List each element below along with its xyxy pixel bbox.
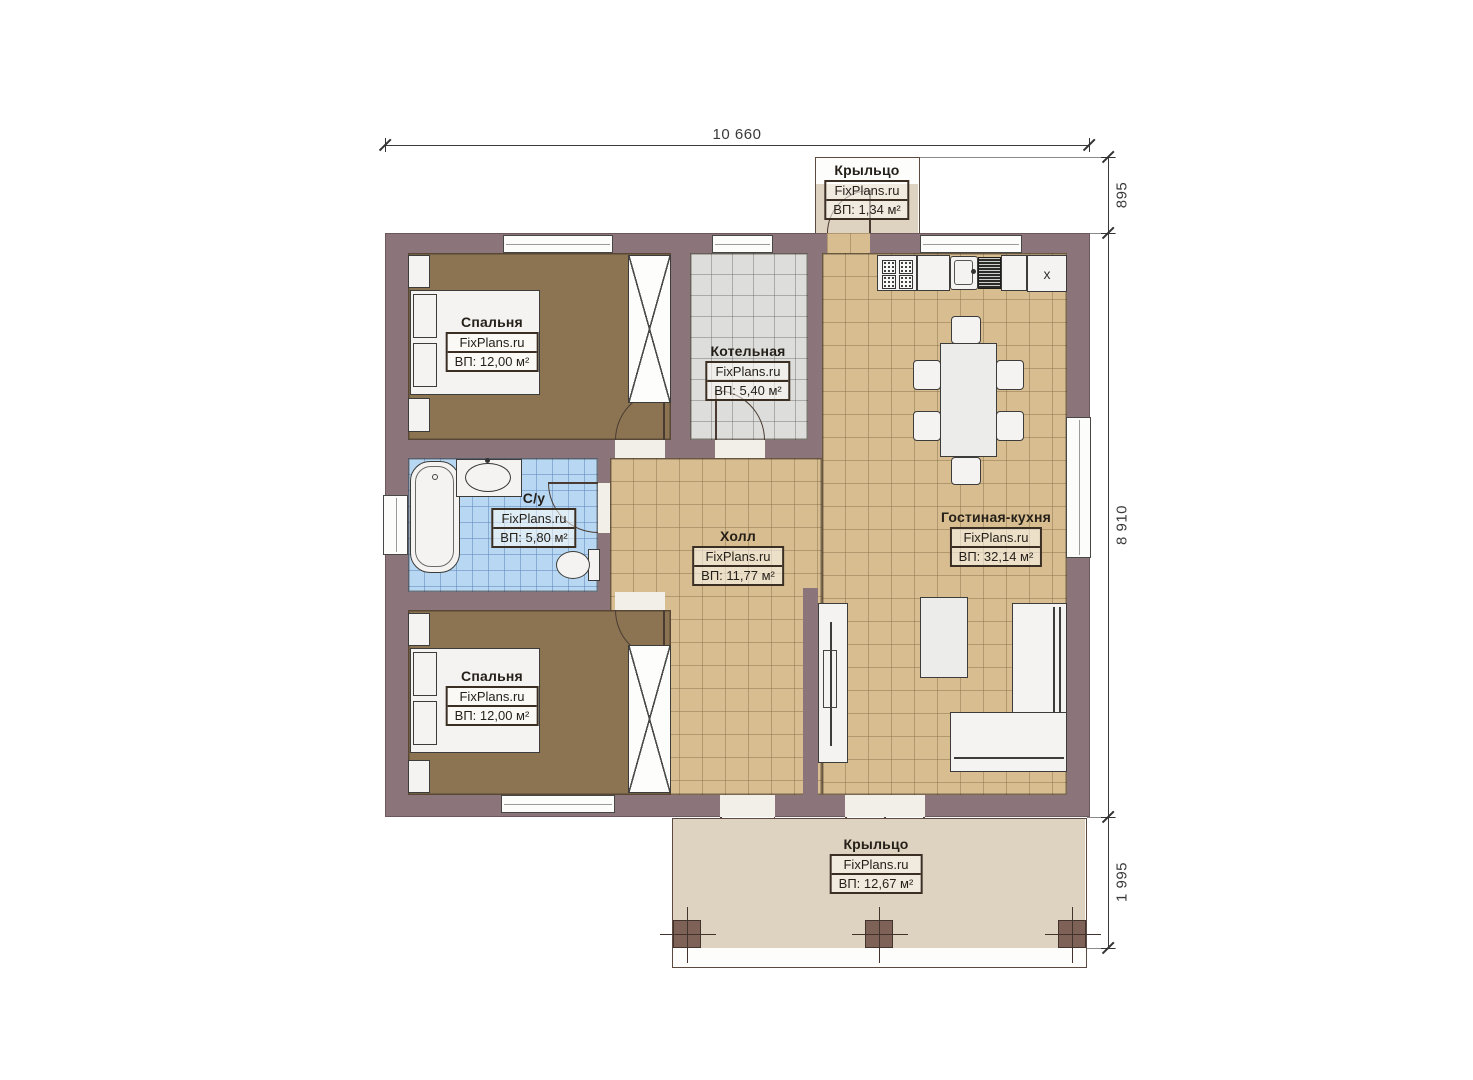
area-label: ВП: 1,34 м²	[826, 201, 907, 218]
window-kitchen	[920, 235, 1022, 253]
room-name: Спальня	[461, 314, 523, 330]
dimension-porch-bottom-depth: 1 995	[1114, 862, 1131, 902]
room-name: С/у	[523, 490, 545, 506]
porch-column	[865, 920, 893, 948]
room-label-porch-top: Крыльцо FixPlans.ru ВП: 1,34 м²	[824, 162, 909, 220]
window-boiler	[712, 235, 773, 253]
brand-label: FixPlans.ru	[448, 688, 537, 707]
window-living	[1066, 417, 1091, 558]
door-opening-bedroom-top	[615, 440, 665, 458]
chair-icon	[913, 411, 941, 441]
pillow-icon	[413, 652, 437, 696]
area-label: ВП: 5,40 м²	[707, 382, 788, 399]
room-label-living-kitchen: Гостиная-кухня FixPlans.ru ВП: 32,14 м²	[941, 509, 1051, 567]
wardrobe-icon	[628, 255, 671, 403]
brand-label: FixPlans.ru	[707, 363, 788, 382]
wardrobe-icon	[628, 645, 671, 793]
tv-unit-icon	[818, 603, 848, 763]
chair-icon	[996, 411, 1024, 441]
brand-label: FixPlans.ru	[826, 182, 907, 201]
pillow-icon	[413, 294, 437, 338]
kitchen-sink-icon	[950, 256, 978, 290]
porch-column	[1058, 920, 1086, 948]
chair-icon	[951, 316, 981, 344]
door-opening-bathroom	[598, 483, 610, 533]
tv-screen	[823, 650, 837, 708]
brand-label: FixPlans.ru	[694, 548, 782, 567]
area-label: ВП: 12,00 м²	[448, 707, 537, 724]
floor-plan: 10 660 895 8 910 1 995	[0, 0, 1473, 1080]
room-label-porch-bottom: Крыльцо FixPlans.ru ВП: 12,67 м²	[830, 836, 923, 894]
kitchen-counter	[917, 255, 950, 291]
fridge-icon: x	[1027, 255, 1067, 292]
room-label-bedroom-top: Спальня FixPlans.ru ВП: 12,00 м²	[446, 314, 539, 372]
area-label: ВП: 5,80 м²	[493, 529, 574, 546]
pillow-icon	[413, 343, 437, 387]
nightstand-icon	[408, 255, 430, 288]
nightstand-icon	[408, 398, 430, 432]
chair-icon	[951, 457, 981, 485]
dimension-line-total-width	[385, 145, 1090, 146]
stove-icon	[877, 255, 917, 291]
wall-hall-living	[803, 588, 818, 795]
faucet-icon	[485, 458, 490, 463]
extension-line	[920, 157, 1116, 158]
window-bathroom	[383, 495, 408, 555]
dimension-porch-top-depth: 895	[1114, 182, 1131, 209]
toilet-icon	[556, 551, 590, 579]
washbasin-icon	[465, 463, 511, 492]
nightstand-icon	[408, 760, 430, 793]
porch-column	[673, 920, 701, 948]
room-name: Гостиная-кухня	[941, 509, 1051, 525]
room-name: Спальня	[461, 668, 523, 684]
room-name: Холл	[720, 528, 756, 544]
bathtub-drain	[432, 474, 438, 480]
brand-label: FixPlans.ru	[448, 334, 537, 353]
dimension-line-right	[1108, 157, 1109, 948]
sofa-icon	[950, 712, 1067, 772]
faucet-icon	[971, 269, 976, 274]
chair-icon	[913, 360, 941, 390]
room-name: Котельная	[710, 343, 785, 359]
room-label-bathroom: С/у FixPlans.ru ВП: 5,80 м²	[491, 490, 576, 548]
chair-icon	[996, 360, 1024, 390]
dimension-house-depth: 8 910	[1114, 505, 1131, 545]
room-name: Крыльцо	[834, 162, 899, 178]
nightstand-icon	[408, 613, 430, 646]
door-opening-boiler	[715, 440, 765, 458]
area-label: ВП: 32,14 м²	[952, 548, 1041, 565]
door-opening-entrance	[827, 233, 870, 253]
room-name: Крыльцо	[843, 836, 908, 852]
brand-label: FixPlans.ru	[832, 856, 921, 875]
room-label-hall: Холл FixPlans.ru ВП: 11,77 м²	[692, 528, 784, 586]
pillow-icon	[413, 701, 437, 745]
room-label-bedroom-bottom: Спальня FixPlans.ru ВП: 12,00 м²	[446, 668, 539, 726]
window-bedroom-bottom	[501, 795, 615, 813]
kitchen-counter	[1001, 255, 1027, 291]
door-leaf-bathroom	[548, 482, 598, 484]
brand-label: FixPlans.ru	[952, 529, 1041, 548]
bathtub-inner	[415, 466, 454, 567]
area-label: ВП: 11,77 м²	[694, 567, 782, 584]
brand-label: FixPlans.ru	[493, 510, 574, 529]
dish-drainer-icon	[978, 257, 1001, 289]
dimension-total-width: 10 660	[713, 126, 762, 143]
door-opening-living-porch	[845, 795, 925, 817]
coffee-table-icon	[920, 597, 968, 678]
room-label-boiler: Котельная FixPlans.ru ВП: 5,40 м²	[705, 343, 790, 401]
dining-table-icon	[940, 343, 997, 457]
door-opening-bedroom-bottom	[615, 592, 665, 610]
area-label: ВП: 12,00 м²	[448, 353, 537, 370]
area-label: ВП: 12,67 м²	[832, 875, 921, 892]
window-bedroom-top	[503, 235, 613, 253]
bathtub-icon	[410, 461, 460, 573]
door-opening-hall-porch	[720, 795, 775, 817]
